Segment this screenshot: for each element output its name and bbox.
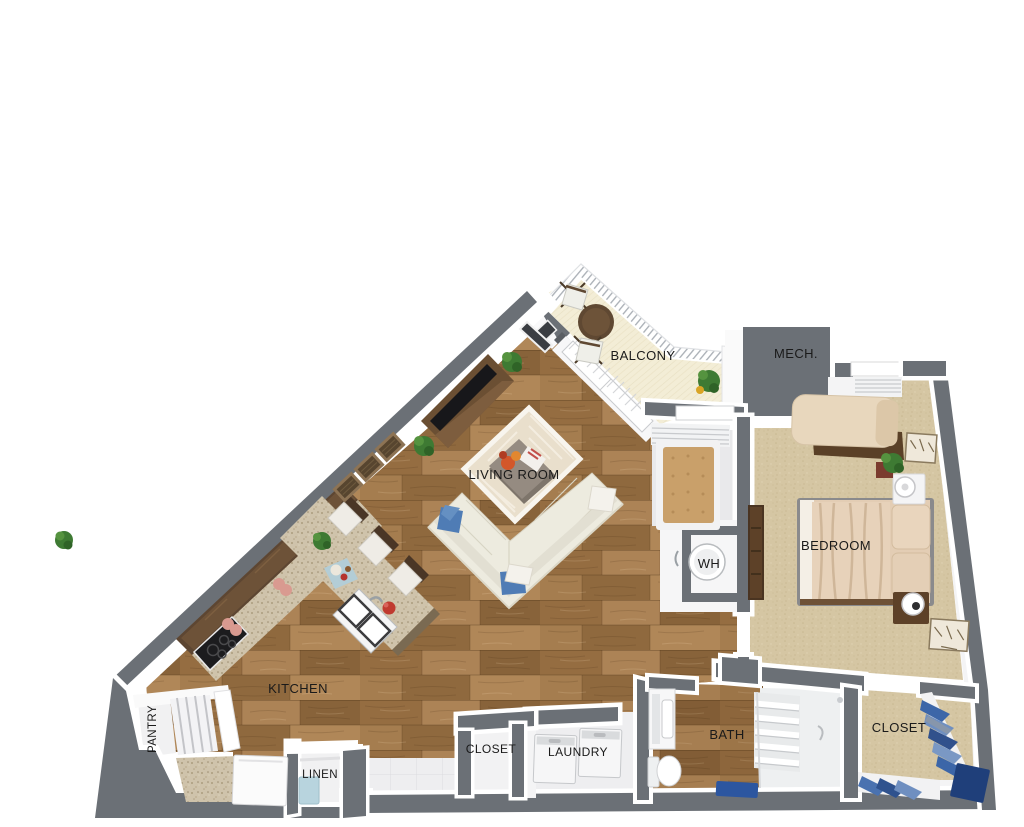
svg-text:BALCONY: BALCONY [611,348,676,363]
svg-text:LAUNDRY: LAUNDRY [548,745,608,759]
svg-text:LIVING ROOM: LIVING ROOM [468,467,559,482]
svg-text:BATH: BATH [709,727,744,742]
svg-text:LINEN: LINEN [302,769,338,781]
svg-text:WH: WH [698,556,720,571]
svg-text:PANTRY: PANTRY [147,705,159,753]
svg-text:KITCHEN: KITCHEN [268,681,328,696]
svg-text:BEDROOM: BEDROOM [801,538,871,553]
svg-text:CLOSET: CLOSET [872,720,926,735]
svg-text:MECH.: MECH. [774,346,818,361]
svg-text:CLOSET: CLOSET [466,742,517,756]
